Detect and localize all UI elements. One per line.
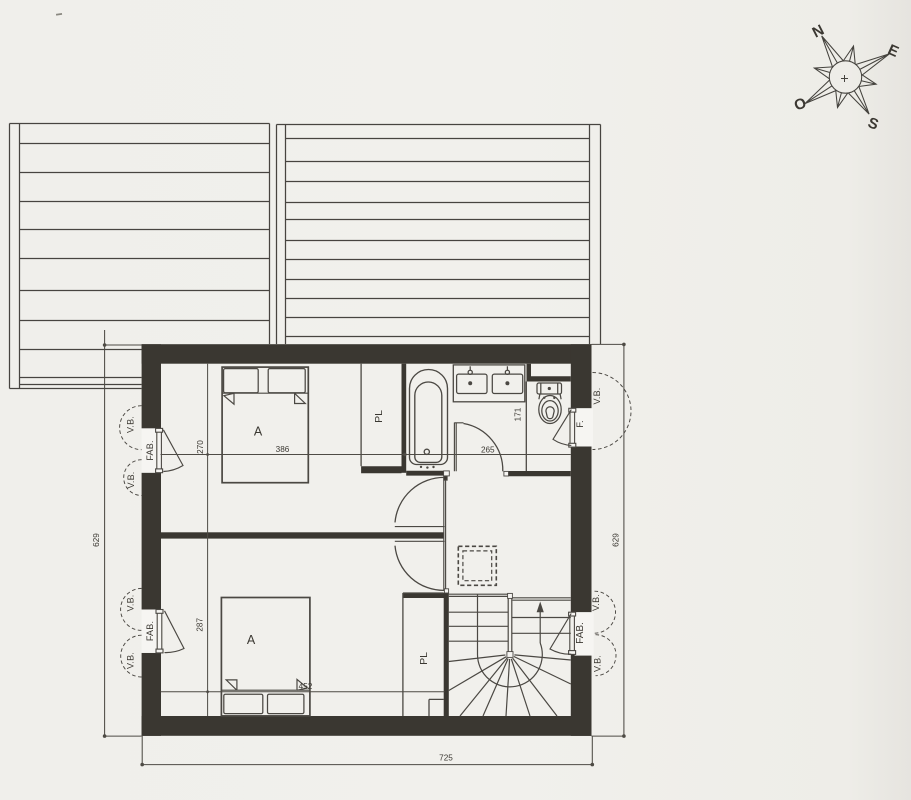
svg-text:629: 629 (611, 533, 620, 547)
svg-text:PL: PL (373, 410, 385, 423)
svg-text:V.B.: V.B. (126, 472, 136, 489)
svg-text:FAB.: FAB. (145, 621, 155, 641)
svg-text:V.B.: V.B. (592, 388, 602, 405)
svg-text:725: 725 (439, 754, 453, 763)
svg-text:171: 171 (514, 407, 523, 421)
svg-text:270: 270 (196, 440, 205, 454)
svg-text:V.B.: V.B. (593, 655, 603, 672)
svg-text:287: 287 (196, 618, 205, 632)
svg-text:PL: PL (418, 652, 430, 665)
svg-text:386: 386 (276, 445, 290, 454)
svg-text:FAB.: FAB. (145, 440, 155, 460)
svg-text:A: A (247, 633, 256, 647)
svg-text:V.B.: V.B. (125, 595, 135, 612)
svg-text:452: 452 (299, 682, 313, 691)
svg-text:629: 629 (92, 533, 101, 547)
svg-text:A: A (254, 425, 263, 439)
svg-text:V.B.: V.B. (125, 416, 135, 433)
svg-text:F.: F. (575, 420, 586, 427)
svg-text:FAB.: FAB. (575, 622, 586, 644)
svg-text:V.B.: V.B. (591, 594, 601, 611)
svg-text:265: 265 (481, 445, 495, 454)
svg-text:V.B.: V.B. (125, 652, 135, 669)
